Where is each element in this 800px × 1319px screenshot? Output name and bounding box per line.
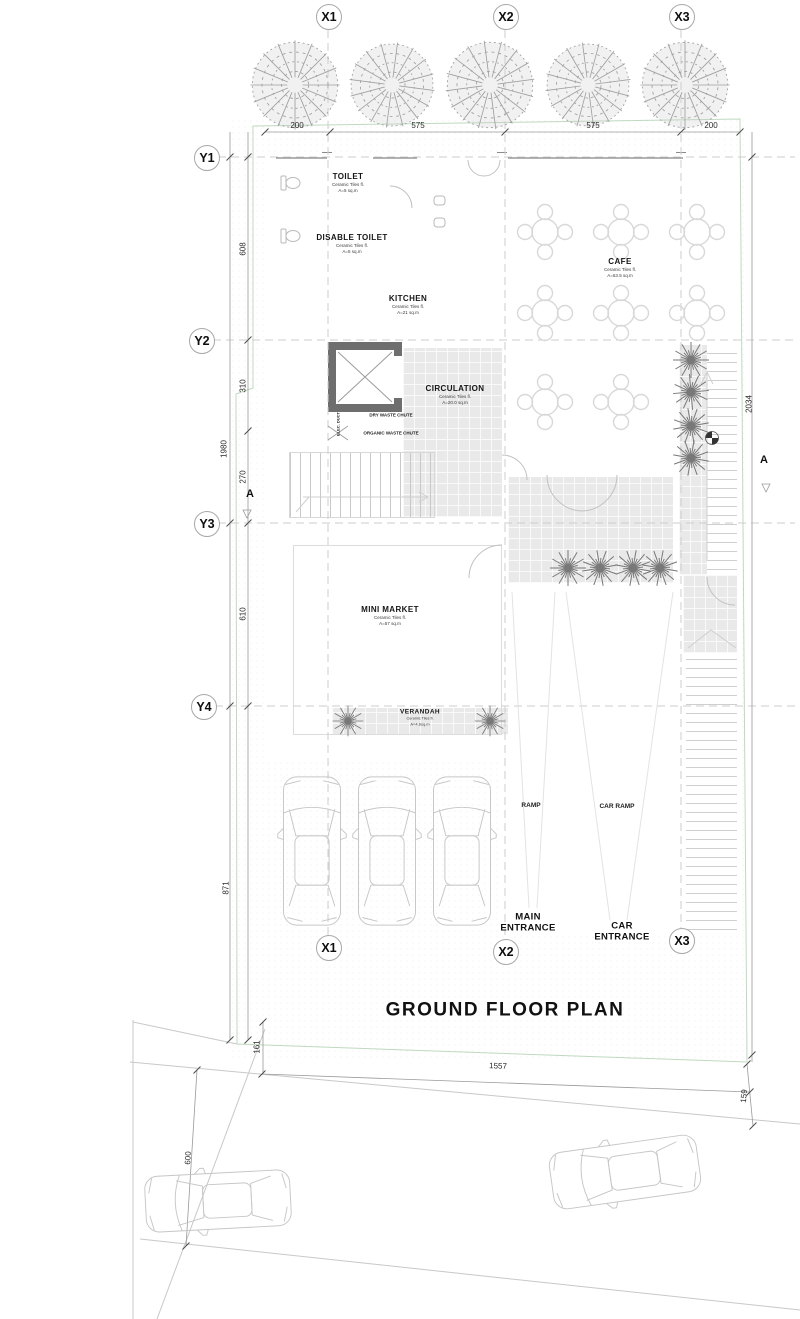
grid-bubble-x2-bottom: X2 bbox=[493, 939, 519, 965]
dim-left-608: 608 bbox=[239, 242, 248, 255]
terrace-plants bbox=[550, 543, 681, 594]
ramp-guide-lines bbox=[512, 592, 673, 920]
room-label-disable-toilet: DISABLE TOILET Ceramic Tiles fl. A=5 sq.… bbox=[316, 233, 387, 255]
dimension-lines bbox=[186, 132, 753, 1246]
room-label-circulation: CIRCULATION Ceramic Tiles fl. A=20.0 sq.… bbox=[426, 384, 485, 406]
dim-left-871: 871 bbox=[222, 881, 231, 894]
main-entrance-label: MAIN ENTRANCE bbox=[496, 912, 560, 935]
linework-layer bbox=[0, 0, 800, 1319]
grid-bubble-x3-bottom: X3 bbox=[669, 928, 695, 954]
room-label-verandah: VERANDAH Ceramic Tiles fl. A=4.6sq.m bbox=[400, 709, 440, 728]
dim-left-610: 610 bbox=[239, 607, 248, 620]
kitchen-area: A=21 sq.m bbox=[389, 310, 427, 316]
toilet-area: A=5 sq.m bbox=[332, 188, 364, 194]
sink-icon bbox=[434, 196, 445, 205]
dim-left-270: 270 bbox=[239, 470, 248, 483]
circulation-area: A=20.0 sq.m bbox=[426, 400, 485, 406]
section-marker-a-right: A bbox=[760, 453, 768, 467]
verandah-area: A=4.6sq.m bbox=[400, 722, 440, 727]
dim-top-575-right: 575 bbox=[586, 121, 599, 131]
dim-left-1980: 1980 bbox=[220, 440, 229, 458]
dim-bottom-161: 161 bbox=[253, 1040, 262, 1053]
disable-toilet-area: A=5 sq.m bbox=[316, 249, 387, 255]
dim-right-2034: 2034 bbox=[745, 395, 754, 413]
dim-left-310: 310 bbox=[239, 379, 248, 392]
site-boundary bbox=[236, 119, 747, 1062]
parking-cars bbox=[278, 777, 496, 925]
room-label-kitchen: KITCHEN Ceramic Tiles fl. A=21 sq.m bbox=[389, 294, 427, 316]
ground-floor-plan-drawing: TOILET Ceramic Tiles fl. A=5 sq.m DISABL… bbox=[0, 0, 800, 1319]
drawing-title: GROUND FLOOR PLAN bbox=[386, 999, 625, 1024]
grid-bubble-x2-top: X2 bbox=[493, 4, 519, 30]
dry-waste-chute-label: DRY WASTE CHUTE bbox=[356, 412, 426, 417]
elevator-cross-icon bbox=[338, 352, 392, 402]
circulation-name: CIRCULATION bbox=[426, 384, 485, 394]
room-label-toilet: TOILET Ceramic Tiles fl. A=5 sq.m bbox=[332, 172, 364, 194]
kitchen-name: KITCHEN bbox=[389, 294, 427, 304]
grid-bubble-y2: Y2 bbox=[189, 328, 215, 354]
room-label-cafe: CAFE Ceramic Tiles fl. A=63.5 sq.m bbox=[604, 257, 636, 279]
car-entrance-label: CAR ENTRANCE bbox=[587, 921, 657, 944]
cafe-name: CAFE bbox=[604, 257, 636, 267]
grid-bubble-y1: Y1 bbox=[194, 145, 220, 171]
grid-bubble-x1-top: X1 bbox=[316, 4, 342, 30]
section-cut-triangles bbox=[243, 484, 770, 518]
sink-icon bbox=[434, 218, 445, 227]
grid-bubble-y4: Y4 bbox=[191, 694, 217, 720]
street-trees-row bbox=[250, 22, 748, 148]
verandah-name: VERANDAH bbox=[400, 709, 440, 717]
dim-top-575-left: 575 bbox=[411, 121, 424, 131]
disable-toilet-name: DISABLE TOILET bbox=[316, 233, 387, 243]
ramp-label: RAMP bbox=[521, 802, 540, 810]
dim-bottom-600: 600 bbox=[183, 1151, 193, 1165]
level-marker-icon bbox=[706, 432, 719, 445]
organic-waste-chute-label: ORGANIC WASTE CHUTE bbox=[356, 430, 426, 435]
car-ramp-label: CAR RAMP bbox=[599, 803, 634, 811]
dim-top-200-left: 200 bbox=[290, 121, 303, 131]
grid-bubble-x1-bottom: X1 bbox=[316, 935, 342, 961]
elec-duct-label: ELEC. DUCT bbox=[337, 412, 342, 436]
room-label-mini-market: MINI MARKET Ceramic Tiles fl. A=57 sq.m bbox=[361, 605, 419, 627]
grid-bubble-x3-top: X3 bbox=[669, 4, 695, 30]
street-cars bbox=[144, 1128, 703, 1238]
dim-bottom-159: 159 bbox=[739, 1089, 749, 1103]
dim-bottom-1557: 1557 bbox=[489, 1061, 507, 1071]
structural-grid-lines bbox=[213, 30, 795, 939]
toilet-name: TOILET bbox=[332, 172, 364, 182]
mini-market-area: A=57 sq.m bbox=[361, 621, 419, 627]
east-strip-plants bbox=[666, 342, 717, 479]
grid-bubble-y3: Y3 bbox=[194, 511, 220, 537]
mini-market-name: MINI MARKET bbox=[361, 605, 419, 615]
cafe-area: A=63.5 sq.m bbox=[604, 273, 636, 279]
dim-top-200-right: 200 bbox=[704, 121, 717, 131]
section-marker-a-left: A bbox=[246, 487, 254, 501]
